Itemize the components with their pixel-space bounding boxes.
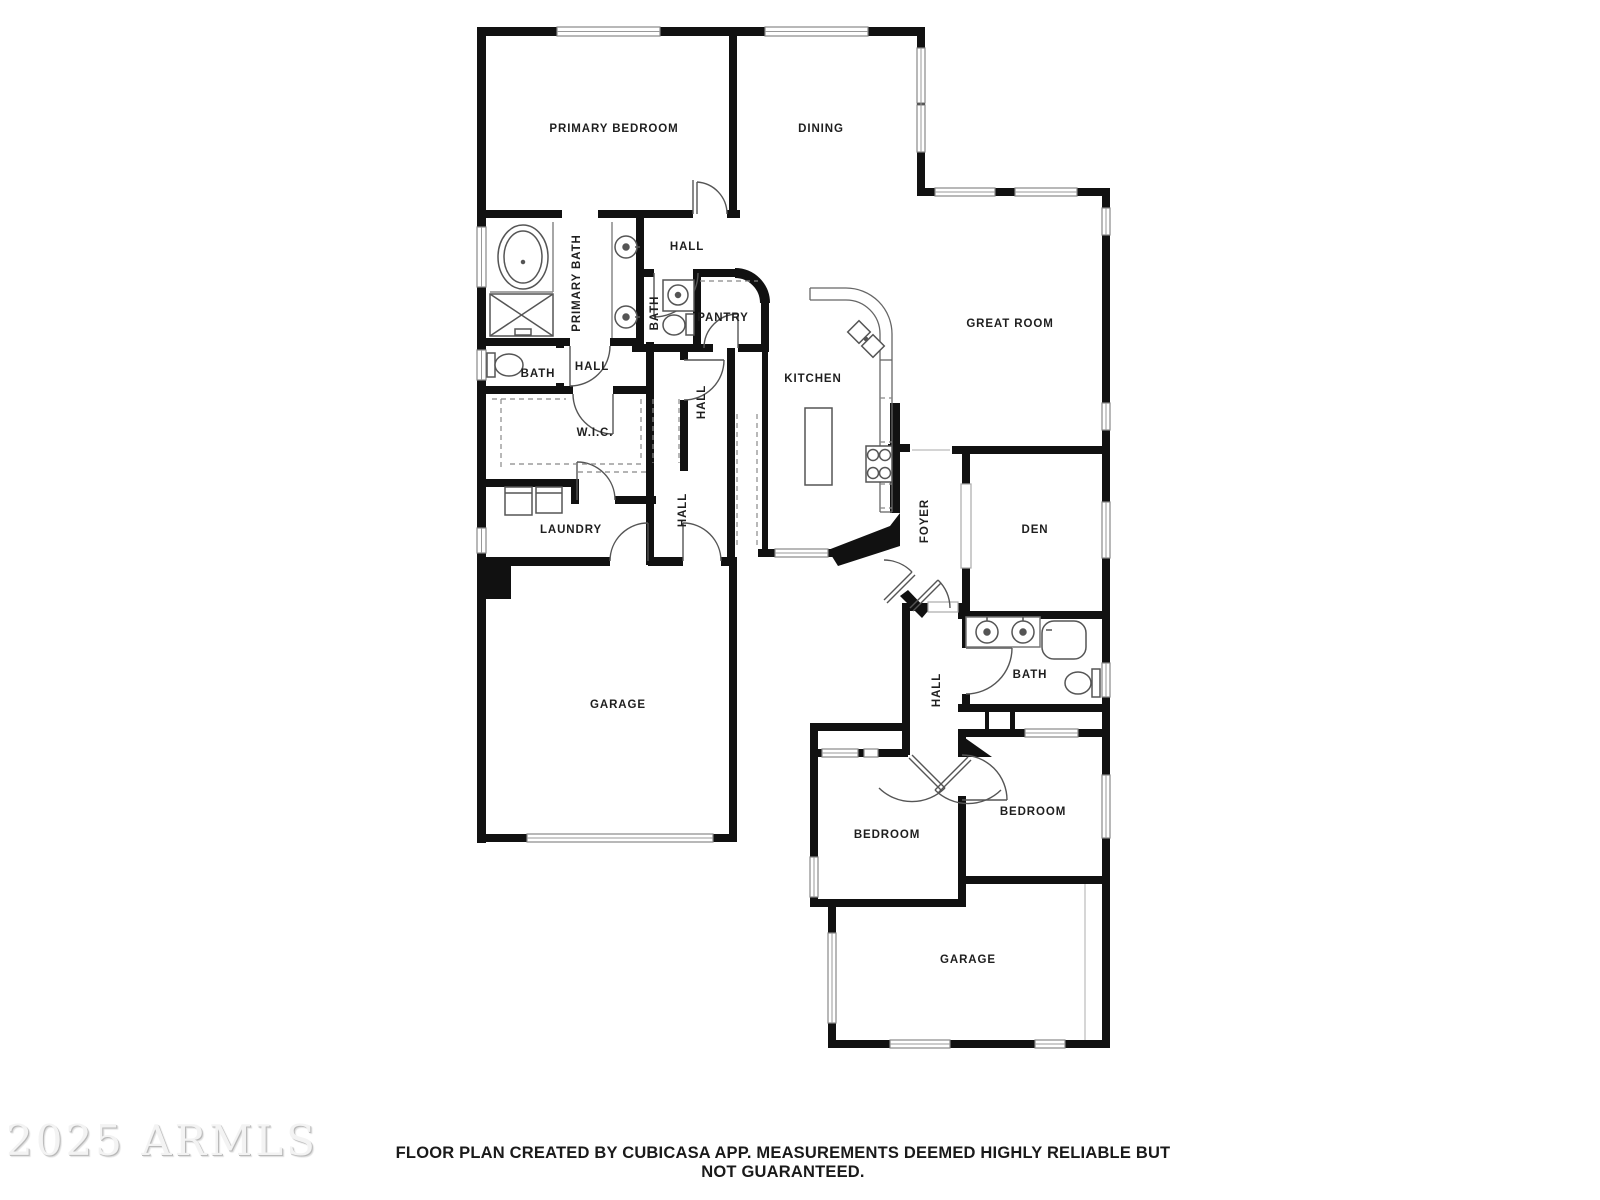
room-label-hall-south: HALL: [931, 673, 943, 707]
room-label-garage-2: GARAGE: [940, 954, 996, 966]
room-label-great-room: GREAT ROOM: [966, 318, 1053, 330]
room-label-bath-toilet-room: BATH: [649, 296, 661, 331]
room-label-bedroom-2: BEDROOM: [1000, 806, 1066, 818]
room-label-bath-den: BATH: [1013, 669, 1048, 681]
room-label-pantry: PANTRY: [697, 312, 748, 324]
room-label-wic: W.I.C.: [577, 427, 614, 439]
room-label-den: DEN: [1022, 524, 1049, 536]
room-label-primary-bath: PRIMARY BATH: [571, 234, 583, 331]
curved-walls: [735, 273, 765, 303]
walls: [477, 27, 1110, 1048]
room-label-garage-1: GARAGE: [590, 699, 646, 711]
room-label-kitchen: KITCHEN: [784, 373, 841, 385]
windows: [477, 27, 1110, 1048]
room-label-bedroom-1: BEDROOM: [854, 829, 920, 841]
room-label-primary-bedroom: PRIMARY BEDROOM: [549, 123, 678, 135]
room-label-hall-mid: HALL: [575, 361, 609, 373]
cubicasa-disclaimer: FLOOR PLAN CREATED BY CUBICASA APP. MEAS…: [383, 1144, 1183, 1182]
room-label-laundry: LAUNDRY: [540, 524, 602, 536]
room-label-dining: DINING: [798, 123, 844, 135]
room-label-hall-laundry: HALL: [677, 493, 689, 527]
closet-dashes: [492, 281, 1085, 1040]
armls-watermark: 2025 ARMLS: [6, 1116, 318, 1165]
room-label-bath-west: BATH: [521, 368, 556, 380]
floor-plan-drawing: [0, 0, 1600, 1200]
floor-plan-page: PRIMARY BEDROOM DINING HALL PRIMARY BATH…: [0, 0, 1600, 1200]
room-label-foyer: FOYER: [919, 499, 931, 543]
room-label-hall-closet: HALL: [696, 385, 708, 419]
room-label-hall-upper: HALL: [670, 241, 704, 253]
